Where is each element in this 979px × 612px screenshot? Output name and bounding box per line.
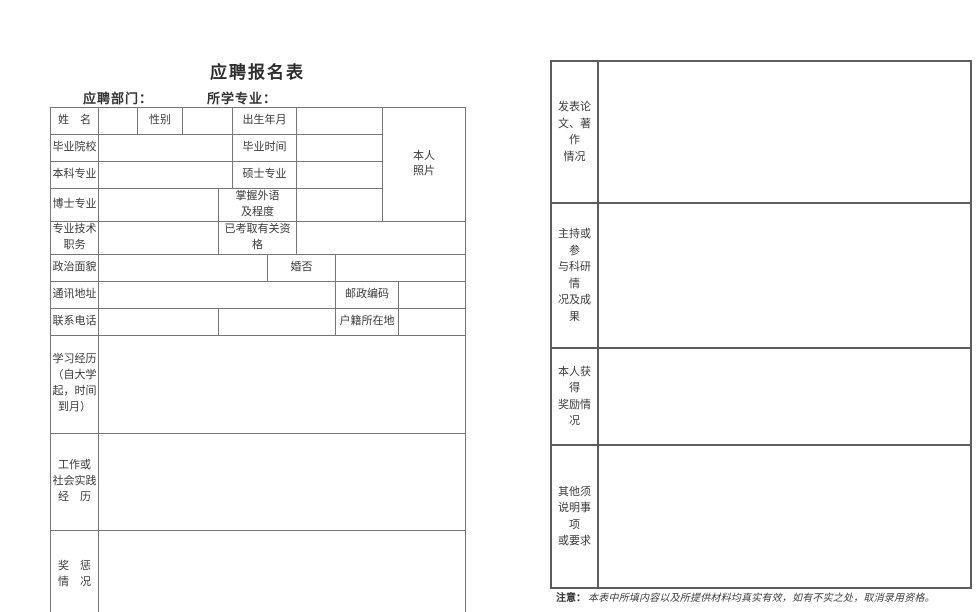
household-location-input-cell[interactable] (399, 308, 466, 335)
professional-title-label: 专业技术 职务 (51, 221, 99, 254)
marital-status-input-cell[interactable] (336, 254, 466, 281)
rewards-punishments-input-cell[interactable] (99, 530, 466, 612)
rewards-punishments-label: 奖 惩 情 况 (51, 530, 99, 612)
foreign-language-input-cell[interactable] (297, 189, 383, 222)
other-notes-label: 其他须 说明事项 或要求 (551, 445, 598, 588)
other-notes-input-cell[interactable] (598, 445, 971, 588)
political-status-label: 政治面貌 (51, 254, 99, 281)
qualifications-input-cell[interactable] (297, 221, 466, 254)
work-experience-input-cell[interactable] (99, 433, 466, 530)
postal-code-label: 邮政编码 (336, 281, 399, 308)
gender-input-cell[interactable] (183, 108, 233, 135)
birth-date-label: 出生年月 (233, 108, 297, 135)
birth-date-input-cell[interactable] (297, 108, 383, 135)
foreign-language-label: 掌握外语 及程度 (219, 189, 297, 222)
political-status-input-cell[interactable] (99, 254, 268, 281)
name-input-cell[interactable] (99, 108, 138, 135)
bachelor-major-label: 本科专业 (51, 162, 99, 189)
notice: 注意：本表中所填内容以及所提供材料均真实有效，如有不实之处，取消录用资格。 (556, 589, 974, 604)
professional-title-input-cell[interactable] (99, 221, 219, 254)
doctor-major-label: 博士专业 (51, 189, 99, 222)
notice-text: 本表中所填内容以及所提供材料均真实有效，如有不实之处，取消录用资格。 (588, 593, 935, 604)
master-major-input-cell[interactable] (297, 162, 383, 189)
master-major-label: 硕士专业 (233, 162, 297, 189)
qualifications-label: 已考取有关资格 (219, 221, 297, 254)
doctor-major-input-cell[interactable] (99, 189, 219, 222)
personal-info-table: 姓 名 性别 出生年月 本人 照片 毕业院校 毕业时间 本科专业 硕士专业 博士… (50, 107, 466, 612)
mailing-address-input-cell[interactable] (99, 281, 336, 308)
contact-phone-label: 联系电话 (51, 308, 99, 335)
graduate-school-input-cell[interactable] (99, 135, 233, 162)
work-experience-label: 工作或 社会实践 经 历 (51, 433, 99, 530)
name-label: 姓 名 (51, 108, 99, 135)
graduate-school-label: 毕业院校 (51, 135, 99, 162)
research-projects-input-cell[interactable] (598, 203, 971, 348)
gender-label: 性别 (138, 108, 183, 135)
bachelor-major-input-cell[interactable] (99, 162, 233, 189)
graduate-time-input-cell[interactable] (297, 135, 383, 162)
contact-phone-input-cell-2[interactable] (219, 308, 336, 335)
awards-received-input-cell[interactable] (598, 348, 971, 445)
awards-received-label: 本人获得 奖励情况 (551, 348, 598, 445)
form-title: 应聘报名表 (50, 58, 465, 83)
mailing-address-label: 通讯地址 (51, 281, 99, 308)
supplementary-info-table: 发表论 文、著作 情况 主持或参 与科研情 况及成果 本人获得 奖励情况 其他须… (550, 60, 972, 589)
photo-cell[interactable]: 本人 照片 (383, 108, 466, 222)
recruit-department-label: 应聘部门： (83, 88, 153, 107)
application-form-page: 应聘报名表 应聘部门： 所学专业： 姓 名 性别 出生年月 本人 照片 毕业院校… (0, 0, 979, 612)
research-projects-label: 主持或参 与科研情 况及成果 (551, 203, 598, 348)
major-studied-label: 所学专业： (207, 88, 277, 107)
contact-phone-input-cell-1[interactable] (99, 308, 219, 335)
postal-code-input-cell[interactable] (399, 281, 466, 308)
graduate-time-label: 毕业时间 (233, 135, 297, 162)
education-history-input-cell[interactable] (99, 335, 466, 433)
publications-label: 发表论 文、著作 情况 (551, 61, 598, 203)
household-location-label: 户籍所在地 (336, 308, 399, 335)
education-history-label: 学习经历 （自大学 起，时间 到月） (51, 335, 99, 433)
marital-status-label: 婚否 (268, 254, 336, 281)
notice-label: 注意： (556, 593, 586, 604)
publications-input-cell[interactable] (598, 61, 971, 203)
